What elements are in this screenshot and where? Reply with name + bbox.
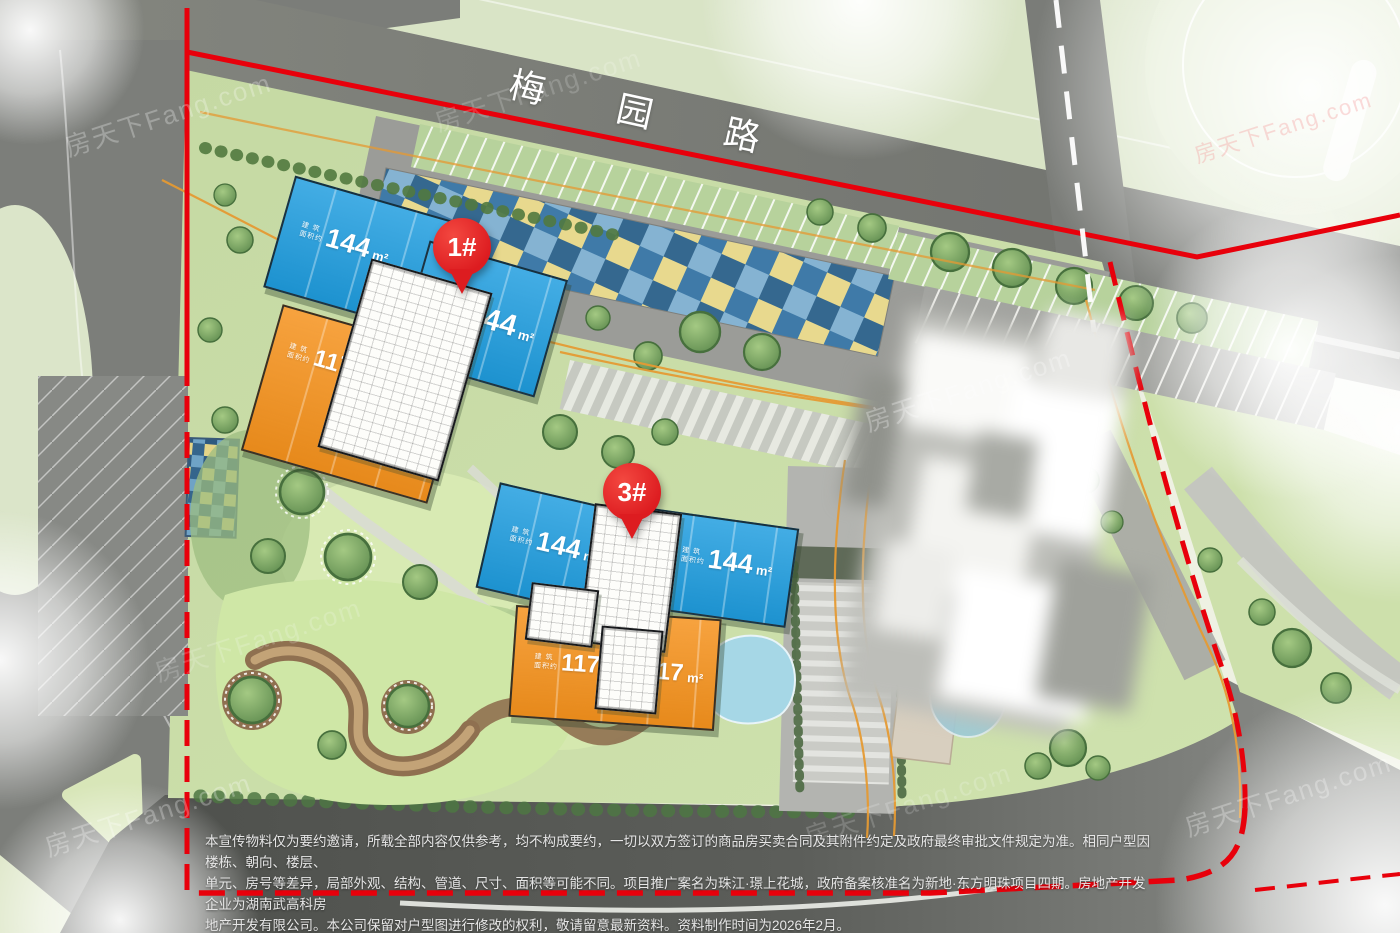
site-plan-page: 建 筑面积约 144 m² 建 筑面积约 144 m² 建 筑面积约 117 m… (0, 0, 1400, 933)
building-3-lift-core (594, 625, 663, 714)
area-unit: m² (687, 670, 704, 686)
pin-3-label: 3# (603, 463, 661, 521)
building-pin-3[interactable]: 3# (603, 463, 661, 539)
area-value: 144 (323, 225, 373, 261)
area-unit: m² (516, 327, 535, 346)
area-value: 144 (707, 547, 755, 577)
disclaimer-text: 本宣传物料仅为要约邀请，所载全部内容仅供参考，均不构成要约，一切以双方签订的商品… (205, 832, 1155, 933)
building-3-stair-core (525, 582, 600, 648)
pin-1-tail-icon (449, 269, 475, 294)
area-value: 117 (560, 652, 600, 676)
area-prefix: 建 筑面积约 (508, 525, 535, 548)
area-prefix: 建 筑面积约 (298, 221, 326, 245)
area-prefix: 建 筑面积约 (286, 342, 314, 366)
area-unit: m² (755, 563, 773, 580)
area-prefix-line2: 面积约 (680, 555, 705, 567)
disclaimer-line-1: 本宣传物料仅为要约邀请，所载全部内容仅供参考，均不构成要约，一切以双方签订的商品… (205, 832, 1155, 874)
building-pin-1[interactable]: 1# (433, 218, 491, 294)
pin-3-tail-icon (619, 514, 645, 539)
area-prefix: 建 筑面积约 (680, 546, 706, 567)
disclaimer-line-2: 单元、房号等差异，局部外观、结构、管道、尺寸、面积等可能不同。项目推广案名为珠江… (205, 874, 1155, 916)
pin-1-label: 1# (433, 218, 491, 276)
area-prefix-line2: 面积约 (534, 661, 559, 672)
disclaimer-line-3: 地产开发有限公司。本公司保留对户型图进行修改的权利，敬请留意最新资料。资料制作时… (205, 916, 1155, 933)
area-prefix: 建 筑面积约 (534, 652, 559, 672)
area-value: 144 (534, 528, 583, 562)
blurred-building (852, 315, 1157, 745)
